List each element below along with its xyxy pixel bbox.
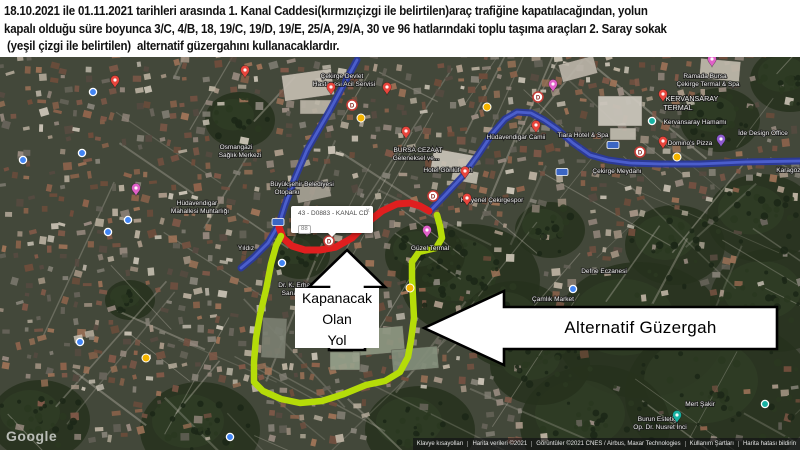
map-label: Defne Eczanesi	[581, 268, 627, 275]
map-marker-circle[interactable]	[19, 156, 26, 163]
announcement-text: 18.10.2021 ile 01.11.2021 tarihleri aras…	[0, 0, 800, 57]
map-label: Hastanesi Acil Servisi	[313, 81, 375, 88]
map-attribution-bar: Klavye kısayolları Harita verileri ©2021…	[413, 438, 800, 450]
map-data-credit: Harita verileri ©2021	[467, 441, 531, 447]
alternative-route-arrow-label: Alternatif Güzergah	[506, 308, 775, 348]
announcement-line: (yeşil çizgi ile belirtilen) alternatif …	[4, 38, 736, 56]
map-label: Geleneksel ve...	[393, 155, 440, 162]
map-label: Hüdavendigar	[177, 200, 218, 207]
announcement-line: kapalı olduğu süre boyunca 3/C, 4/B, 18,…	[4, 21, 736, 39]
map-marker-circle[interactable]	[569, 285, 576, 292]
report-error-link[interactable]: Harita hatası bildirin	[738, 441, 800, 447]
road-shield-icon: D	[635, 147, 645, 157]
svg-text:D: D	[350, 103, 355, 109]
map-marker-circle[interactable]	[124, 216, 131, 223]
map-label: Osmangazi	[220, 144, 253, 151]
svg-text:D: D	[536, 95, 541, 101]
map-label: Op. Dr. Nusret İnci	[633, 422, 686, 431]
road-shield-icon: D	[428, 191, 438, 201]
map-label: Çekirge Meydanı	[592, 168, 641, 175]
map-marker-dot[interactable]	[406, 284, 414, 292]
road-tooltip: × 43 - D0883 - KANAL CD 88	[291, 206, 373, 233]
map-marker-dot[interactable]	[142, 354, 150, 362]
closed-road-arrow-label-line: Olan	[322, 309, 352, 330]
imagery-credit: Görüntüler ©2021 CNES / Airbus, Maxar Te…	[531, 441, 684, 447]
map-marker-badge[interactable]	[272, 219, 284, 226]
satellite-map[interactable]: Çekirge DevletHastanesi Acil ServisiBüyü…	[0, 0, 800, 450]
road-shield-icon: D	[347, 100, 357, 110]
map-label: Büyükşehir Belediyesi	[270, 181, 334, 188]
map-marker-circle[interactable]	[278, 259, 285, 266]
map-label: Tiara Hotel & Spa	[557, 132, 608, 139]
map-label: Ramada Bursa	[683, 73, 727, 80]
keyboard-shortcuts-link[interactable]: Klavye kısayolları	[413, 441, 468, 447]
screenshot-root: Çekirge DevletHastanesi Acil ServisiBüyü…	[0, 0, 800, 450]
map-marker-badge[interactable]	[607, 142, 619, 149]
map-label: Yıldız	[238, 245, 254, 252]
map-label: Güzel Termal	[411, 245, 450, 252]
map-marker-badge[interactable]	[556, 169, 568, 176]
map-label: Burun Estetiği	[638, 416, 678, 423]
map-label: Kervansaray Hamamı	[664, 119, 727, 126]
map-label: Çekirge Termal & Spa	[676, 81, 739, 88]
map-marker-circle[interactable]	[226, 433, 233, 440]
map-marker-circle[interactable]	[78, 149, 85, 156]
map-label: Mahallesi Muhtarlığı	[171, 208, 229, 215]
map-label: BURSA CEZAAT	[393, 147, 442, 154]
map-marker-circle[interactable]	[76, 338, 83, 345]
road-shield-icon: D	[533, 92, 543, 102]
svg-text:D: D	[431, 194, 436, 200]
road-tooltip-title: 43 - D0883 - KANAL CD	[291, 206, 373, 217]
map-marker-circle[interactable]	[648, 117, 655, 124]
map-label: Karagöz M	[776, 167, 800, 174]
map-marker-dot[interactable]	[673, 153, 681, 161]
google-logo[interactable]: Google	[6, 428, 57, 444]
map-label: Mert Şakir	[685, 401, 715, 408]
map-marker-dot[interactable]	[483, 103, 491, 111]
map-label: TERMAL	[663, 103, 692, 112]
road-tooltip-badge: 88	[298, 225, 311, 234]
map-marker-circle[interactable]	[761, 400, 768, 407]
map-label: Hüdavendigar Camii	[487, 134, 546, 141]
map-label: KERVANSARAY	[666, 94, 719, 103]
map-label: Domino's Pizza	[668, 140, 713, 147]
announcement-line: 18.10.2021 ile 01.11.2021 tarihleri aras…	[4, 3, 736, 21]
map-label: Çamlık Market	[532, 296, 574, 303]
map-marker-dot[interactable]	[357, 114, 365, 122]
closed-road-arrow-label-line: Yol	[328, 330, 347, 351]
close-icon[interactable]: ×	[365, 207, 370, 215]
map-label: Otoparkı	[275, 189, 300, 196]
map-marker-circle[interactable]	[89, 88, 96, 95]
map-marker-circle[interactable]	[104, 228, 111, 235]
closed-road-arrow-label: Kapanacak Olan Yol	[295, 288, 379, 348]
map-label: Sağlık Merkezi	[219, 152, 262, 159]
terms-link[interactable]: Kullanım Şartları	[685, 441, 738, 447]
map-label: İde Design Office	[738, 128, 788, 137]
closed-road-arrow-label-line: Kapanacak	[302, 288, 372, 309]
svg-text:D: D	[638, 150, 643, 156]
map-label: Çekirge Devlet	[321, 73, 364, 80]
